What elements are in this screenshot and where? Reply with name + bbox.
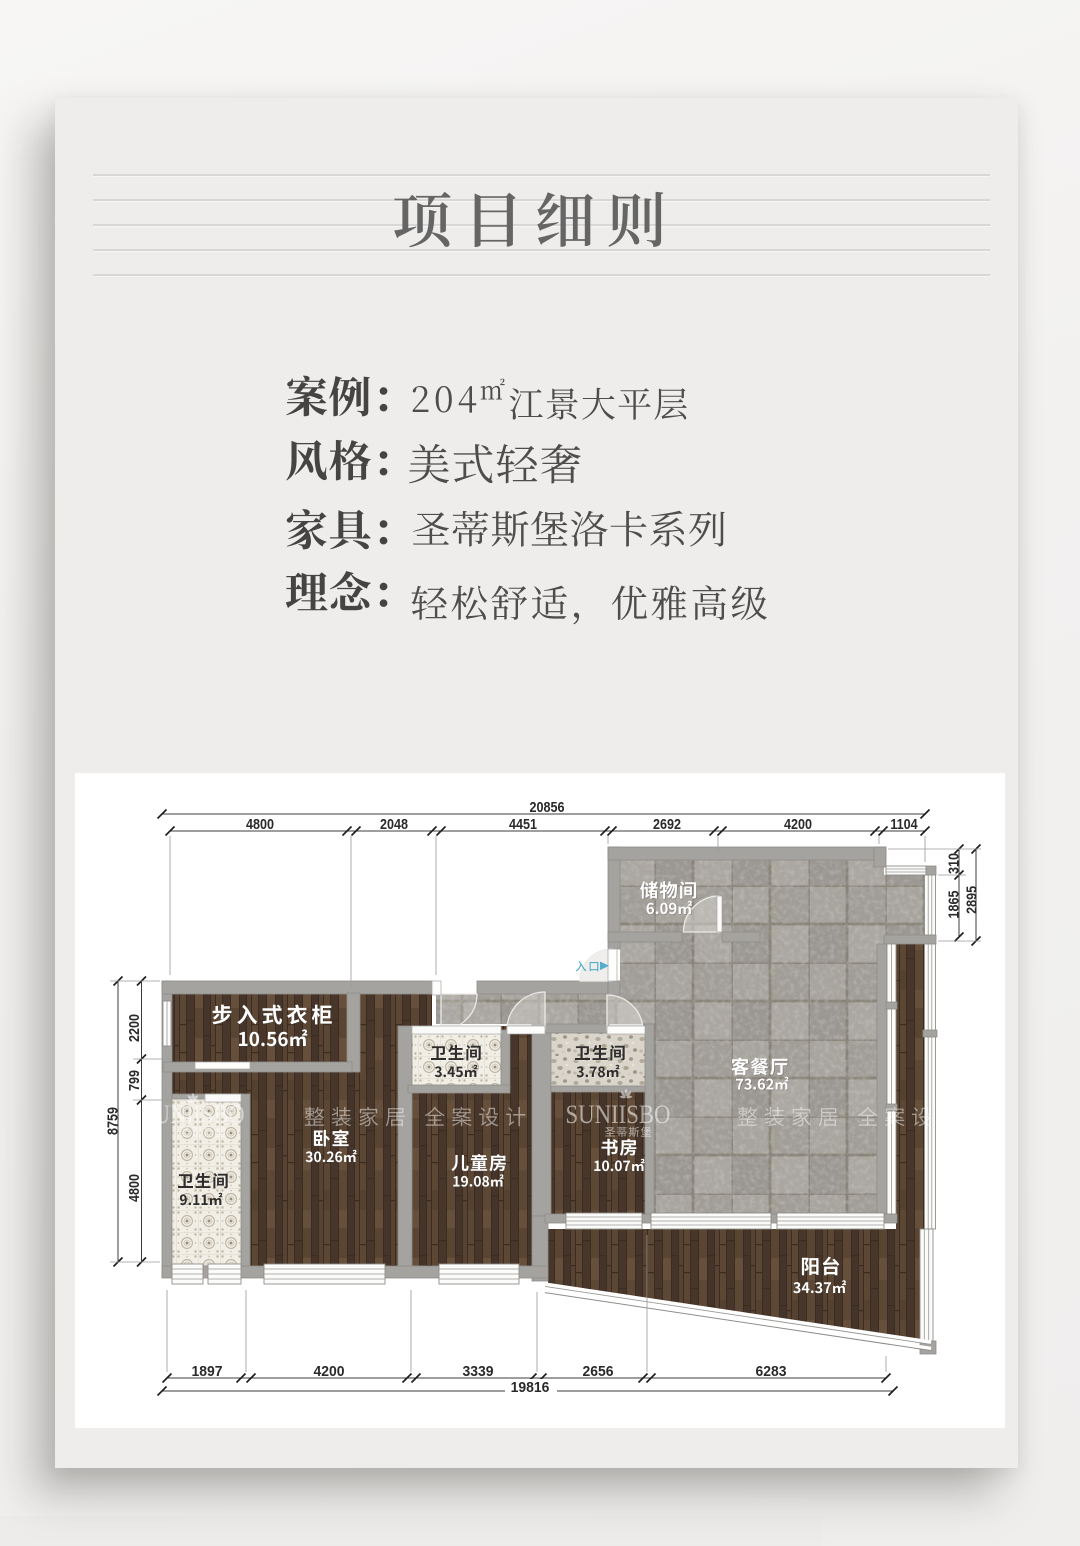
svg-text:20856: 20856 (529, 798, 564, 815)
svg-text:2692: 2692 (653, 815, 681, 832)
svg-text:1104: 1104 (890, 815, 918, 832)
svg-text:310: 310 (944, 853, 961, 874)
svg-text:3339: 3339 (463, 1364, 494, 1381)
svg-text:2895: 2895 (962, 886, 979, 914)
svg-text:1897: 1897 (192, 1364, 223, 1381)
svg-text:2048: 2048 (380, 815, 408, 832)
svg-text:4800: 4800 (125, 1174, 142, 1202)
svg-text:2200: 2200 (125, 1014, 142, 1042)
svg-text:SUNIISBO: SUNIISBO (142, 1100, 245, 1129)
svg-text:4200: 4200 (784, 815, 812, 832)
svg-text:4200: 4200 (314, 1364, 345, 1381)
svg-text:8759: 8759 (103, 1107, 120, 1135)
svg-text:4800: 4800 (246, 815, 274, 832)
svg-text:2656: 2656 (583, 1364, 614, 1381)
svg-text:4451: 4451 (509, 815, 537, 832)
svg-text:19816: 19816 (511, 1380, 550, 1397)
svg-text:799: 799 (125, 1070, 142, 1091)
svg-text:SUNIISBO: SUNIISBO (566, 1100, 671, 1129)
svg-text:6283: 6283 (756, 1364, 787, 1381)
svg-text:1865: 1865 (944, 890, 961, 918)
